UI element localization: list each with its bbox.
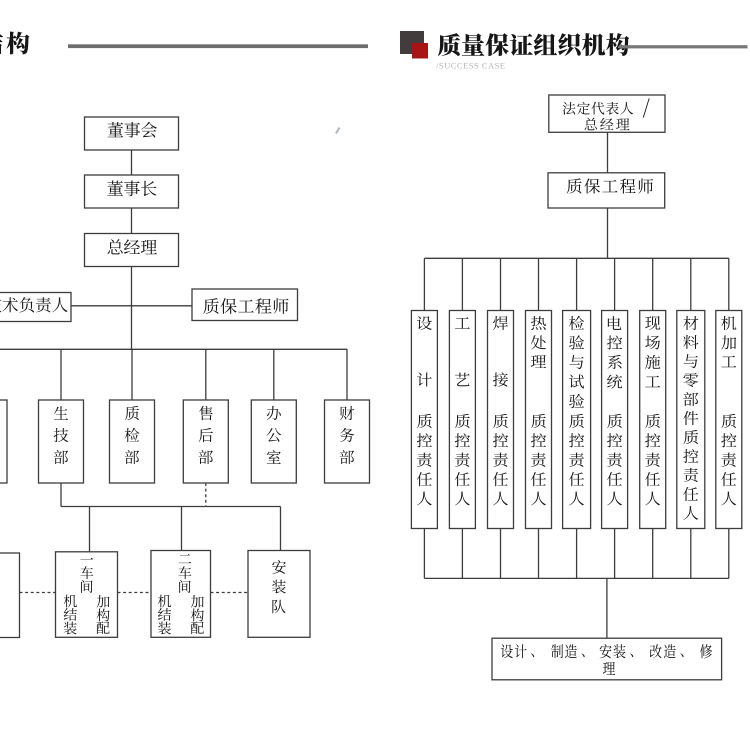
- svg-text:/SUCCESS CASE: /SUCCESS CASE: [436, 60, 506, 70]
